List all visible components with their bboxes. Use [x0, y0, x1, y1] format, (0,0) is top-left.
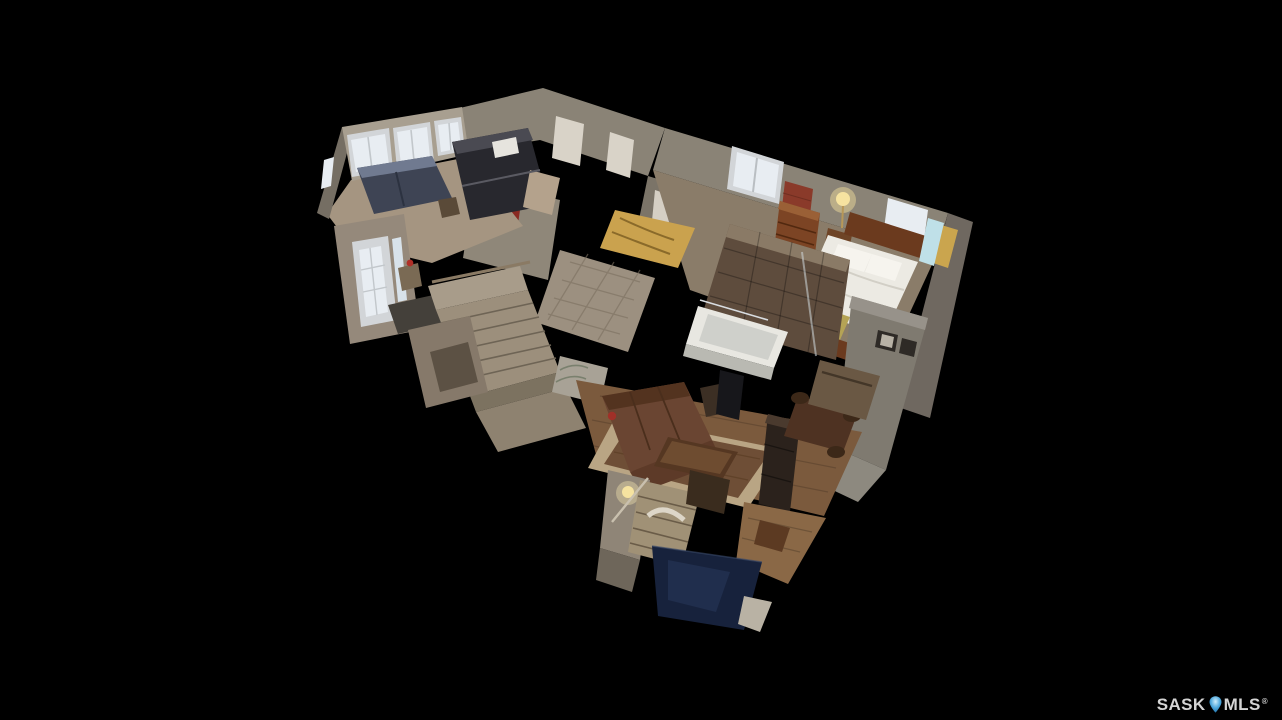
watermark-suffix: MLS — [1224, 695, 1261, 715]
registered-symbol: ® — [1262, 697, 1268, 706]
map-pin-icon — [1209, 696, 1222, 713]
hall-tile-floor — [535, 250, 655, 352]
saskmls-watermark: SASK MLS ® — [1157, 695, 1268, 715]
hall-door — [552, 116, 584, 166]
3d-dollhouse-viewport[interactable]: SASK MLS ® — [0, 0, 1282, 720]
entry-table — [398, 263, 422, 291]
lamp-shade — [836, 192, 850, 206]
red-flowers — [407, 260, 414, 267]
hall-door-2 — [606, 132, 634, 178]
watermark-prefix: SASK — [1157, 695, 1206, 715]
dollhouse-render — [0, 0, 1282, 720]
tv-screen — [716, 370, 744, 420]
lamp-stand — [842, 206, 843, 228]
red-cushion — [608, 412, 616, 420]
living-room — [552, 356, 880, 548]
dining-chair-3 — [827, 446, 845, 458]
dining-chair-1 — [791, 392, 809, 404]
kitchen — [452, 128, 560, 220]
